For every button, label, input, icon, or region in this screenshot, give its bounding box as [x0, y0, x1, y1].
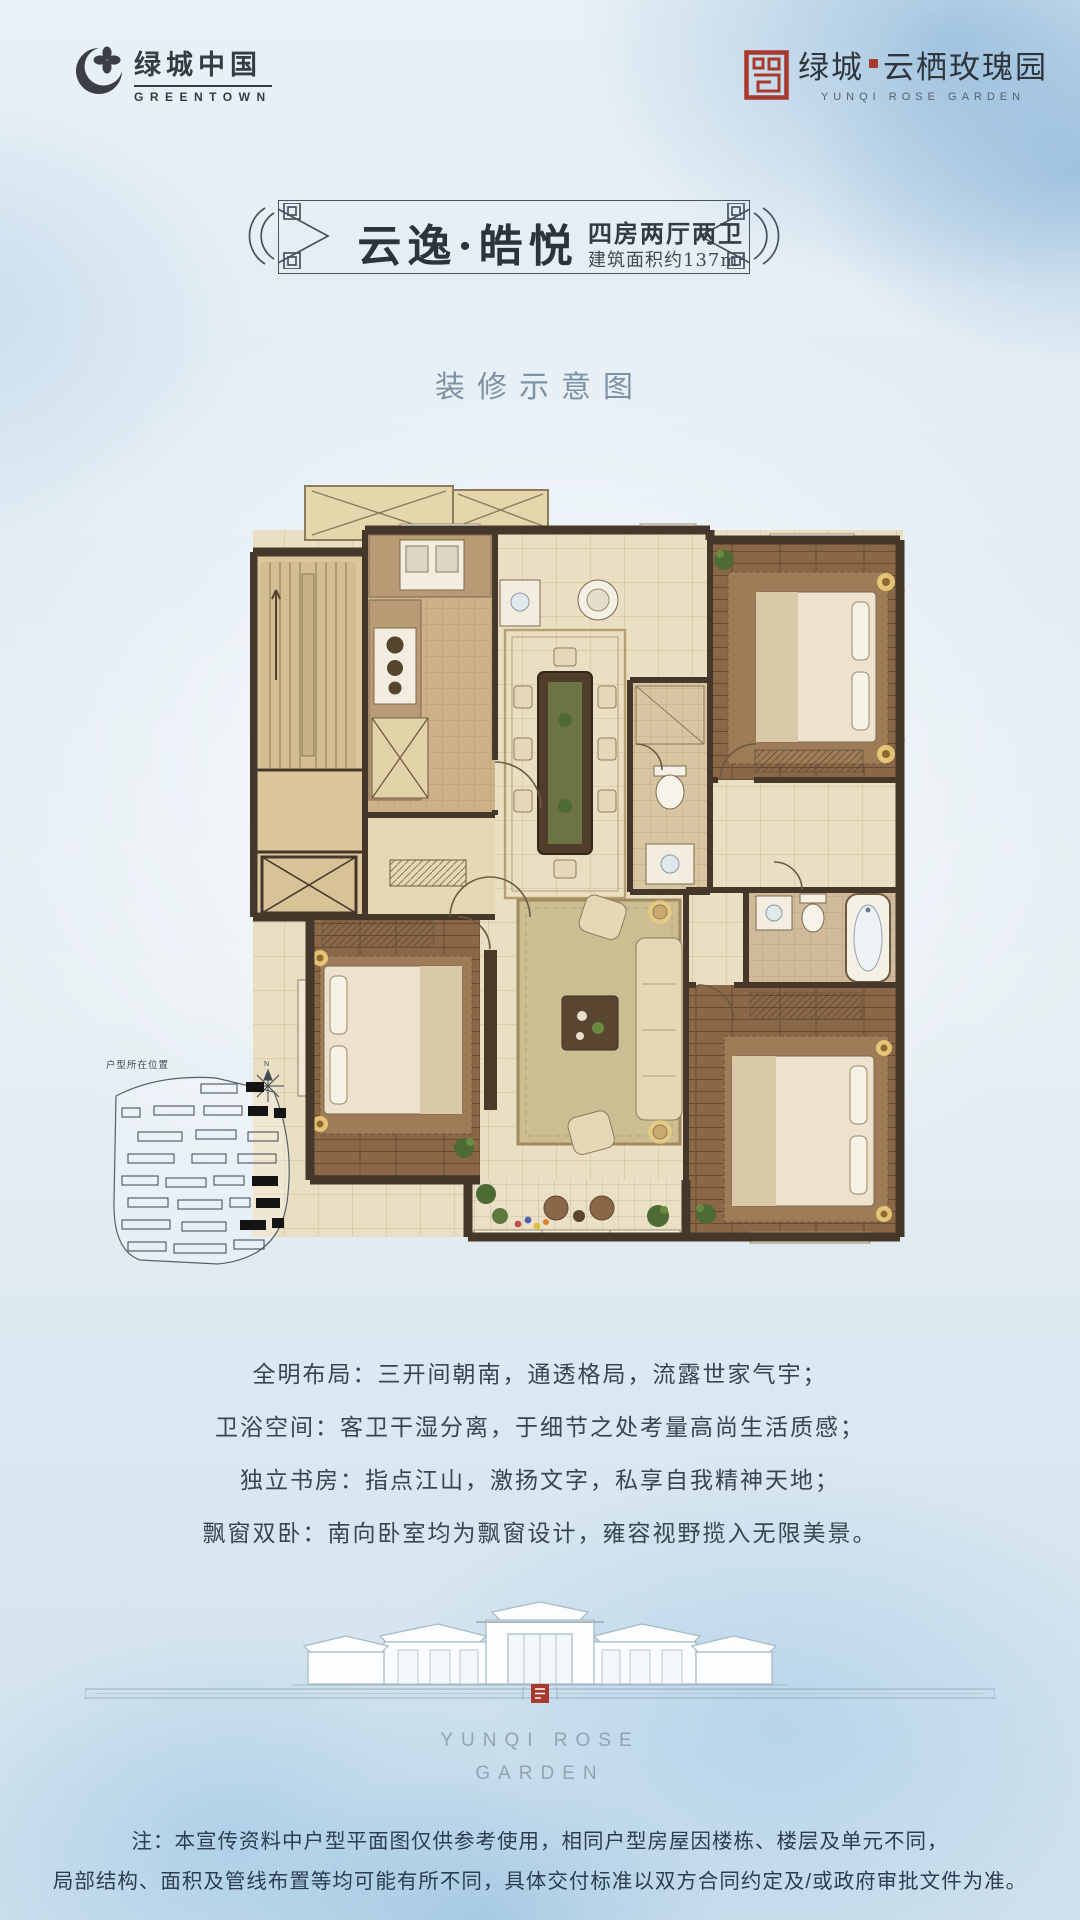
svg-text:N: N — [264, 1061, 269, 1068]
brand-footer-line1: YUNQI ROSE — [0, 1724, 1080, 1757]
project-logo: 绿城 云栖玫瑰园 YUNQI ROSE GARDEN — [744, 50, 1048, 103]
project-seal-icon — [744, 50, 789, 100]
project-name-en: YUNQI ROSE GARDEN — [798, 91, 1048, 103]
site-map: 户型所在位置 N — [98, 1052, 298, 1272]
feature-line: 全明布局：三开间朝南，通透格局，流露世家气宇； — [0, 1348, 1080, 1401]
greentown-crescent-clover-icon — [74, 46, 124, 96]
feature-line: 卫浴空间：客卫干湿分离，于细节之处考量高尚生活质感； — [0, 1401, 1080, 1454]
building-elevation-sketch — [280, 1592, 800, 1692]
feature-list: 全明布局：三开间朝南，通透格局，流露世家气宇； 卫浴空间：客卫干湿分离，于细节之… — [0, 1348, 1080, 1560]
greentown-name-cn: 绿城中国 — [134, 46, 272, 79]
dresser — [755, 750, 863, 772]
project-separator-seal-icon — [869, 59, 878, 68]
sofa — [636, 938, 682, 1120]
feature-line: 独立书房：指点江山，激扬文字，私享自我精神天地； — [0, 1454, 1080, 1507]
renovation-note: 装修示意图 — [0, 362, 1080, 406]
floor-plan — [250, 480, 905, 1250]
unit-spec: 四房两厅两卫 — [588, 214, 744, 249]
balcony — [468, 1180, 686, 1237]
master-bathroom — [746, 890, 900, 985]
disclaimer-line2: 局部结构、面积及管线布置等均可能有所不同，具体交付标准以双方合同约定及/或政府审… — [0, 1862, 1080, 1902]
tv-cabinet — [484, 950, 497, 1110]
poster-canvas: 绿城中国 GREENTOWN 绿城 云栖玫瑰园 YUNQI ROSE GARDE… — [0, 0, 1080, 1920]
unit-area: 建筑面积约137m² — [588, 246, 747, 272]
shoe-cabinet — [390, 860, 466, 886]
greentown-divider — [134, 85, 272, 87]
greentown-logo: 绿城中国 GREENTOWN — [74, 46, 272, 104]
disclaimer: 注：本宣传资料中户型平面图仅供参考使用，相同户型房屋因楼栋、楼层及单元不同， 局… — [0, 1822, 1080, 1902]
kitchen — [365, 530, 495, 815]
balcony-chair — [590, 1196, 614, 1220]
red-seal-icon — [531, 1684, 549, 1703]
unit-title: 云逸·皓悦 — [318, 210, 618, 274]
brand-footer: YUNQI ROSE GARDEN — [0, 1724, 1080, 1790]
stair-core — [253, 552, 365, 917]
greentown-name-en: GREENTOWN — [134, 90, 272, 104]
toilet — [656, 775, 684, 809]
project-name-prefix: 绿城 — [798, 50, 864, 87]
brand-footer-line2: GARDEN — [0, 1757, 1080, 1790]
coffee-table — [562, 996, 618, 1050]
divider-band — [85, 1684, 995, 1704]
wardrobe — [322, 921, 434, 947]
feature-line: 飘窗双卧：南向卧室均为飘窗设计，雍容视野揽入无限美景。 — [0, 1507, 1080, 1560]
project-name-suffix: 云栖玫瑰园 — [883, 50, 1048, 87]
foyer — [365, 815, 495, 917]
bedroom-top-right — [710, 540, 900, 780]
site-map-label: 户型所在位置 — [106, 1059, 169, 1071]
guest-bathroom — [630, 680, 710, 892]
wardrobe — [750, 993, 862, 1019]
balcony-chair — [544, 1196, 568, 1220]
bedroom-bottom-right — [686, 985, 900, 1237]
bedroom-bottom-left — [298, 917, 480, 1180]
disclaimer-line1: 注：本宣传资料中户型平面图仅供参考使用，相同户型房屋因楼栋、楼层及单元不同， — [0, 1822, 1080, 1862]
